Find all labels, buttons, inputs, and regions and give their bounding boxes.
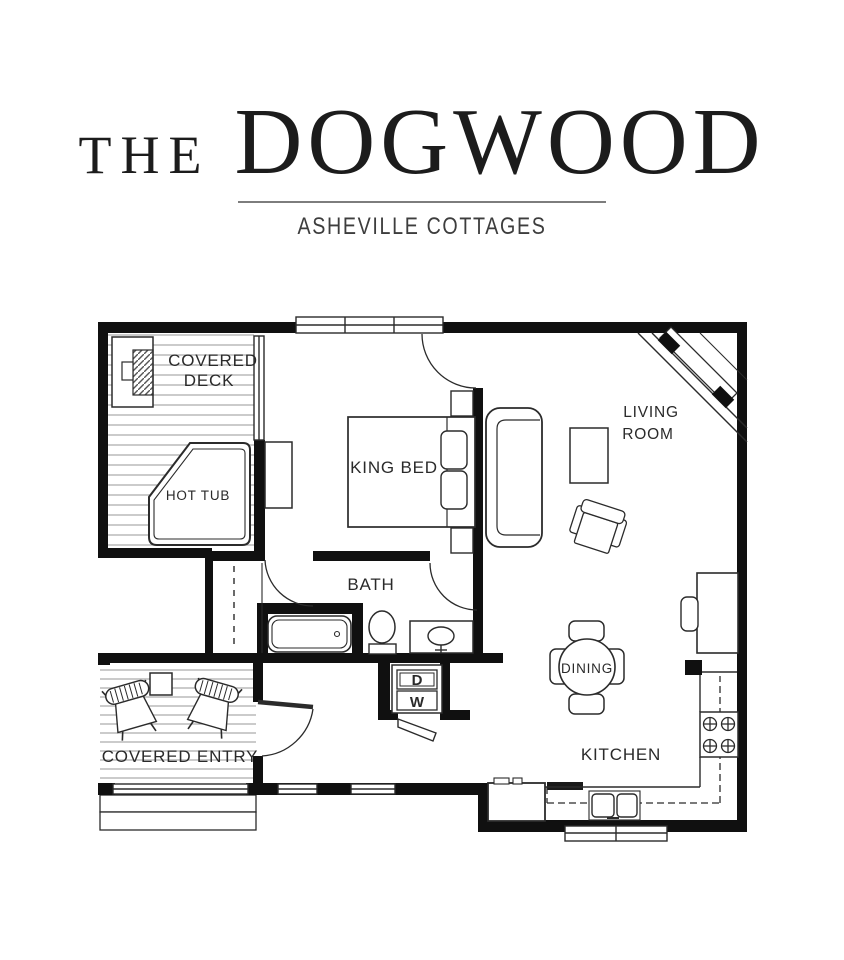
plan-subtitle: ASHEVILLE COTTAGES bbox=[76, 213, 768, 241]
label-king-bed: KING BED bbox=[350, 458, 438, 477]
pillow bbox=[441, 471, 467, 509]
label-covered-entry: COVERED ENTRY bbox=[102, 747, 259, 766]
label-living: LIVING bbox=[623, 404, 679, 421]
sink-basin-right bbox=[617, 794, 637, 817]
entry-step-2 bbox=[100, 812, 256, 830]
floor-plan-page: THE DOGWOOD ASHEVILLE COTTAGES bbox=[0, 0, 844, 960]
wall-bed-bottom-a bbox=[212, 551, 265, 561]
label-hot-tub: HOT TUB bbox=[166, 488, 230, 503]
deck-bench bbox=[112, 337, 153, 407]
bench-hatched-seat bbox=[133, 350, 153, 395]
dw-closet-door bbox=[398, 719, 436, 741]
bath-door-swing-2 bbox=[430, 563, 477, 610]
entry-side-table bbox=[150, 673, 172, 695]
desk-area bbox=[681, 573, 738, 653]
front-door-leaf bbox=[258, 702, 313, 707]
label-bath: BATH bbox=[347, 575, 394, 594]
wall-deck-left bbox=[98, 322, 108, 558]
label-covered-deck-1: COVERED bbox=[168, 351, 258, 370]
bedroom-door-swing bbox=[422, 334, 476, 388]
label-kitchen: KITCHEN bbox=[581, 745, 661, 764]
toilet-bowl bbox=[369, 611, 395, 643]
title-main: DOGWOOD bbox=[234, 98, 765, 187]
label-washer: W bbox=[410, 694, 425, 711]
wall-dw-stub-right bbox=[440, 710, 470, 720]
fridge-handle bbox=[513, 778, 522, 784]
label-covered-deck-2: DECK bbox=[184, 371, 234, 390]
wall-tub-right bbox=[352, 603, 363, 663]
counter-appliance bbox=[547, 782, 583, 790]
coffee-table bbox=[570, 428, 608, 483]
refrigerator bbox=[488, 783, 545, 821]
dining-chair bbox=[569, 694, 604, 714]
label-room: ROOM bbox=[622, 426, 673, 443]
sink-basin-left bbox=[592, 794, 614, 817]
label-dryer: D bbox=[412, 672, 423, 689]
nightstand bbox=[451, 391, 473, 416]
wall-deck-bottom bbox=[98, 548, 212, 558]
living-room-furniture bbox=[486, 408, 630, 556]
desk bbox=[697, 573, 738, 653]
title-divider bbox=[238, 201, 606, 203]
sink-basin bbox=[428, 627, 454, 645]
front-door-swing bbox=[262, 709, 313, 756]
porch-post-top bbox=[98, 653, 110, 665]
fridge-handle bbox=[494, 778, 509, 784]
wall-bed-bottom-b bbox=[313, 551, 430, 561]
nightstand bbox=[451, 528, 473, 553]
entry-step-1 bbox=[100, 795, 256, 812]
pillow bbox=[441, 431, 467, 469]
armchair bbox=[566, 497, 629, 556]
wall-stub-desk bbox=[685, 660, 702, 675]
toilet-tank bbox=[369, 644, 396, 654]
bench-knob bbox=[122, 362, 133, 380]
desk-chair bbox=[681, 597, 698, 631]
plan-title: THE DOGWOOD bbox=[0, 98, 844, 187]
label-dining: DINING bbox=[561, 661, 613, 676]
corner-fireplace bbox=[638, 327, 747, 442]
bathtub-drain bbox=[335, 632, 340, 637]
bath-door-swing-1 bbox=[265, 560, 313, 606]
dresser bbox=[265, 442, 292, 508]
sofa bbox=[486, 408, 542, 547]
wall-bed-west bbox=[254, 440, 265, 552]
title-prefix: THE bbox=[79, 124, 211, 186]
plan-header: THE DOGWOOD ASHEVILLE COTTAGES bbox=[0, 98, 844, 241]
dining-chair bbox=[569, 621, 604, 641]
wall-porch-top bbox=[105, 653, 263, 663]
wall-closet-left bbox=[205, 551, 213, 663]
wall-tub-top bbox=[257, 603, 363, 614]
